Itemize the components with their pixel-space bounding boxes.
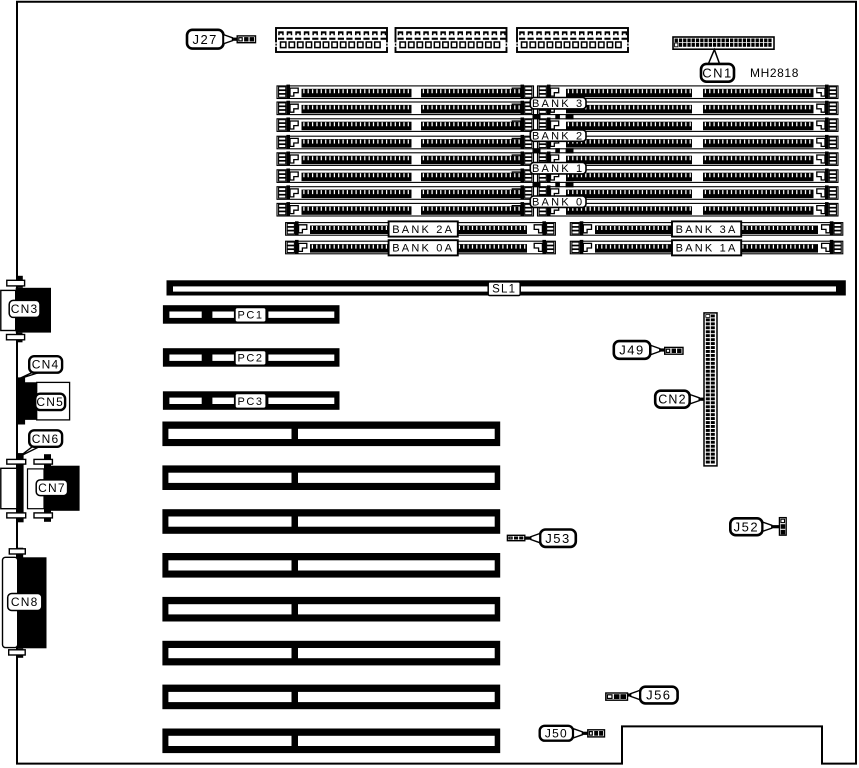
- svg-text:CN2: CN2: [658, 393, 687, 407]
- svg-text:PC3: PC3: [238, 396, 264, 408]
- svg-text:PC1: PC1: [238, 310, 264, 322]
- svg-text:BANK 0: BANK 0: [532, 197, 584, 209]
- svg-text:CN3: CN3: [11, 302, 39, 316]
- svg-text:J49: J49: [619, 343, 644, 358]
- svg-text:BANK 3: BANK 3: [532, 98, 584, 110]
- svg-text:CN8: CN8: [11, 595, 39, 609]
- svg-text:CN5: CN5: [36, 395, 64, 409]
- svg-text:BANK 0A: BANK 0A: [392, 243, 454, 255]
- svg-text:BANK 2: BANK 2: [532, 130, 584, 142]
- svg-text:MH2818: MH2818: [750, 66, 799, 80]
- svg-text:J50: J50: [545, 727, 568, 741]
- svg-text:PC2: PC2: [238, 353, 264, 365]
- svg-text:CN6: CN6: [32, 432, 60, 446]
- svg-text:CN7: CN7: [38, 481, 66, 495]
- svg-text:J56: J56: [646, 688, 671, 703]
- svg-text:CN4: CN4: [32, 358, 60, 372]
- svg-text:BANK 1: BANK 1: [532, 163, 584, 175]
- svg-text:CN1: CN1: [702, 65, 733, 80]
- svg-text:J53: J53: [545, 531, 570, 546]
- svg-text:J52: J52: [734, 519, 759, 534]
- svg-text:BANK 1A: BANK 1A: [676, 243, 738, 255]
- svg-text:BANK 3A: BANK 3A: [676, 224, 738, 236]
- svg-text:J27: J27: [192, 32, 217, 47]
- svg-text:SL1: SL1: [492, 284, 516, 296]
- svg-text:BANK 2A: BANK 2A: [392, 224, 454, 236]
